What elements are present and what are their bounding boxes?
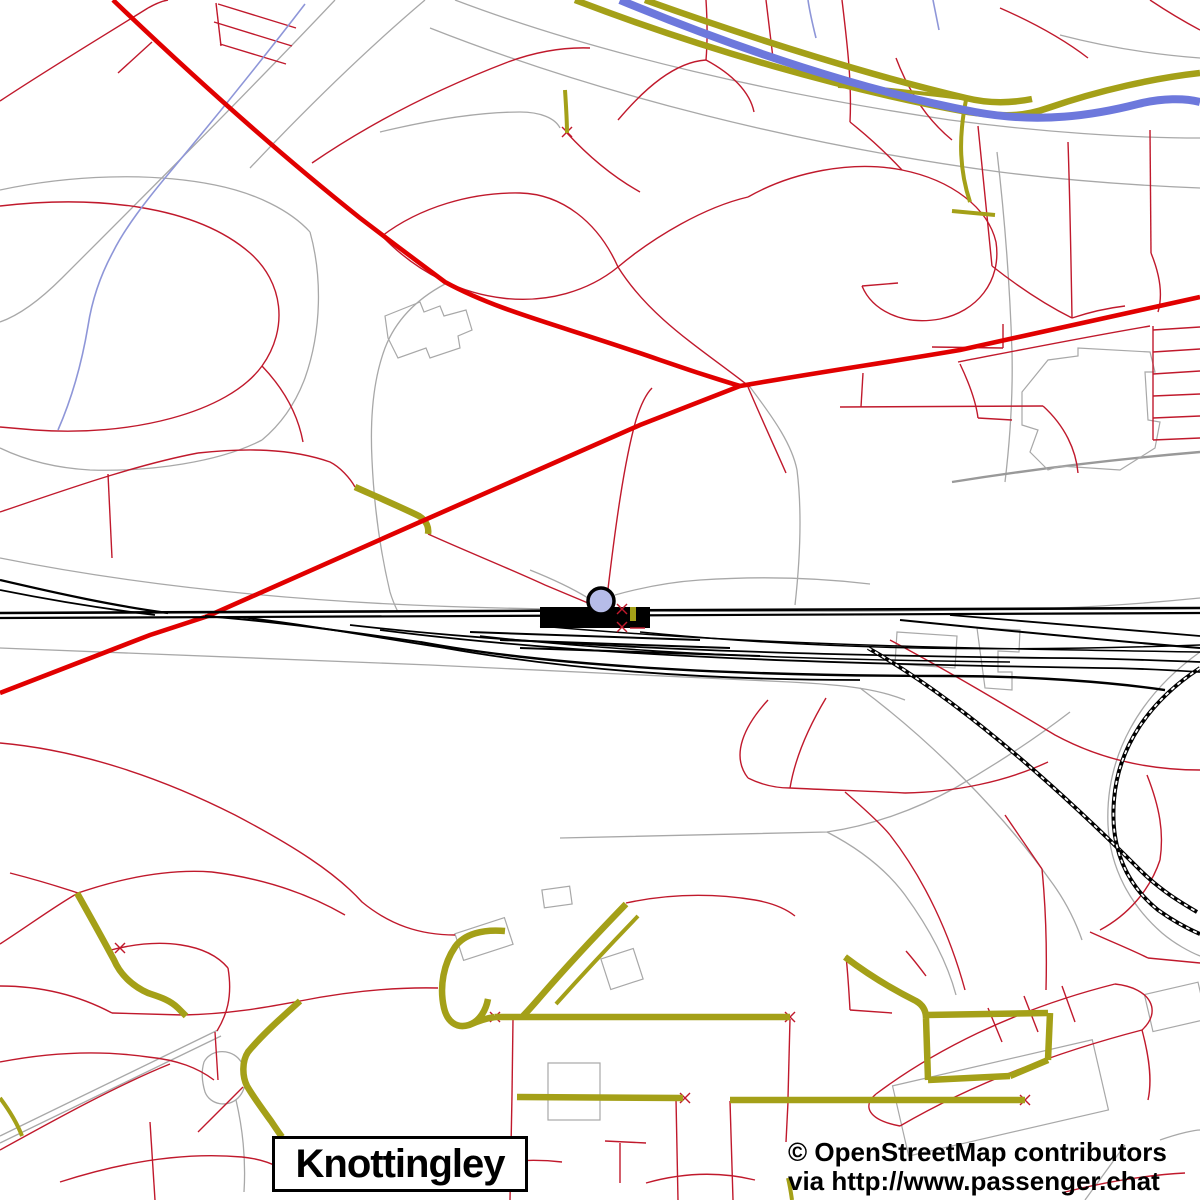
place-label-text: Knottingley: [296, 1142, 505, 1187]
buildings-layer: [385, 302, 1200, 1156]
attribution-line2: via http://www.passenger.chat: [788, 1167, 1167, 1196]
water-layer: [58, 0, 1200, 430]
level-crossing-icon: [630, 607, 636, 621]
station-area: [540, 588, 650, 632]
map-art: [0, 0, 1200, 1200]
attribution-line1: © OpenStreetMap contributors: [788, 1138, 1167, 1167]
station-marker[interactable]: [588, 588, 614, 614]
place-label: Knottingley: [272, 1136, 528, 1192]
map-canvas[interactable]: Knottingley © OpenStreetMap contributors…: [0, 0, 1200, 1200]
map-attribution: © OpenStreetMap contributors via http://…: [788, 1138, 1167, 1196]
